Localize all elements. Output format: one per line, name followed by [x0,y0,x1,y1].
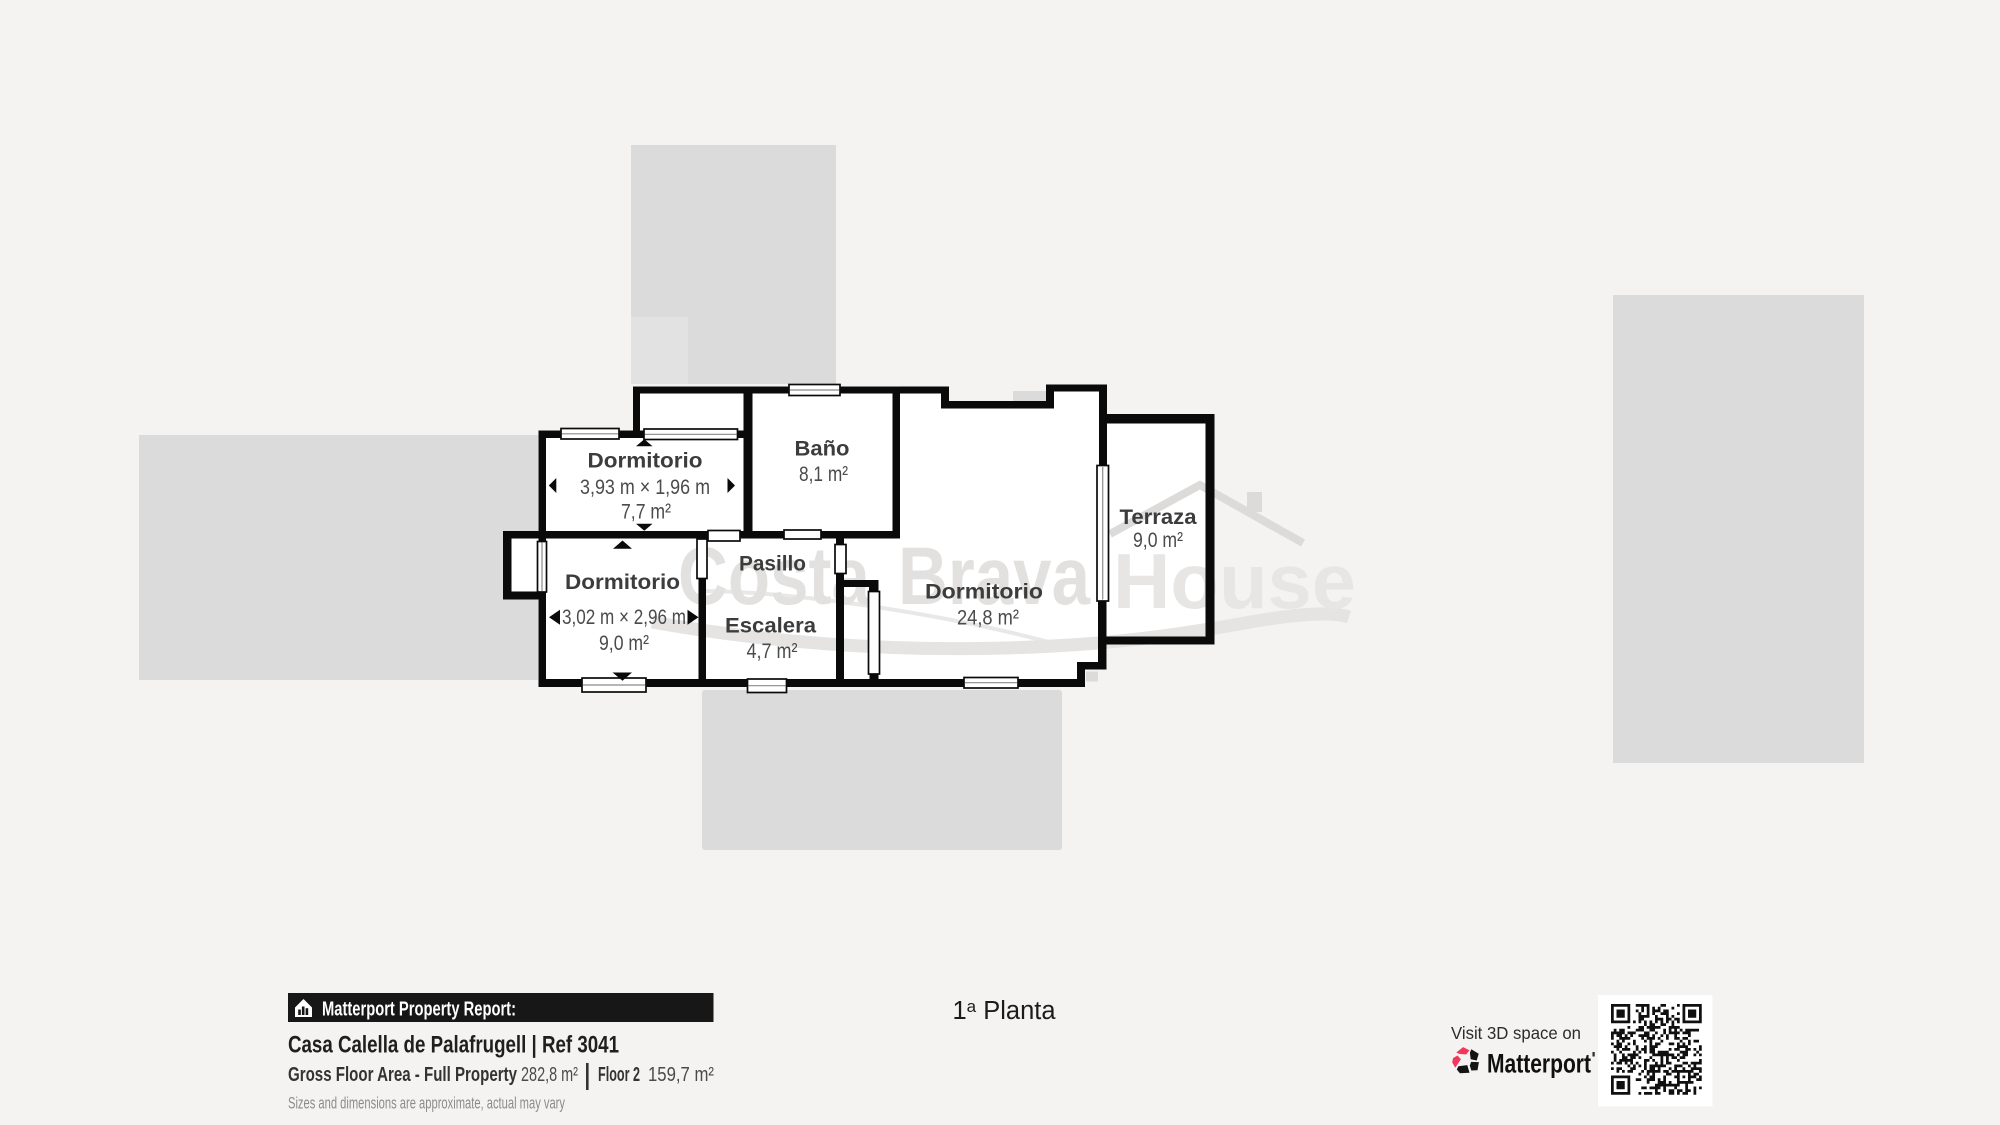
svg-text:4,7 m²: 4,7 m² [747,640,798,663]
svg-text:24,8 m²: 24,8 m² [957,607,1019,630]
svg-text:Casa Calella de Palafrugell |: Casa Calella de Palafrugell | Ref 3041 [288,1032,619,1059]
svg-text:Visit 3D space on: Visit 3D space on [1451,1023,1581,1043]
svg-text:Baño: Baño [795,438,850,461]
svg-text:Dormitorio: Dormitorio [588,450,703,473]
svg-text:Matterport: Matterport [1487,1049,1591,1079]
svg-text:159,7 m²: 159,7 m² [648,1063,714,1086]
svg-text:Dormitorio: Dormitorio [925,581,1043,604]
svg-text:3,02 m × 2,96 m: 3,02 m × 2,96 m [562,606,686,629]
svg-text:7,7 m²: 7,7 m² [621,501,671,524]
svg-text:Matterport Property Report:: Matterport Property Report: [322,999,516,1021]
svg-text:Dormitorio: Dormitorio [565,571,680,594]
svg-text:Pasillo: Pasillo [739,553,806,576]
svg-text:9,0 m²: 9,0 m² [1133,529,1183,552]
svg-text:8,1 m²: 8,1 m² [799,463,848,486]
svg-text:Escalera: Escalera [725,615,816,638]
svg-text:Gross Floor Area - Full Proper: Gross Floor Area - Full Property [288,1063,517,1086]
svg-text:282,8 m²: 282,8 m² [521,1063,578,1086]
svg-text:Floor 2: Floor 2 [598,1063,640,1086]
svg-text:Terraza: Terraza [1120,506,1197,529]
svg-text:9,0 m²: 9,0 m² [599,632,649,655]
svg-text:Sizes and dimensions are appro: Sizes and dimensions are approximate, ac… [288,1094,565,1113]
svg-text:3,93 m × 1,96 m: 3,93 m × 1,96 m [580,476,710,499]
